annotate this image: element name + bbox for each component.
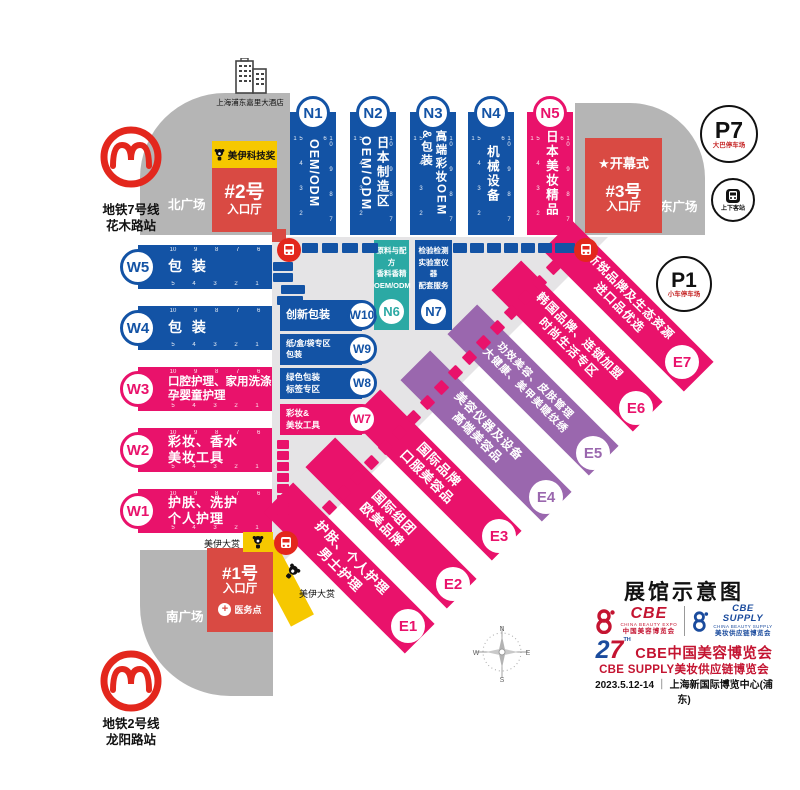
compass-n: N [499,626,504,633]
hall-w4-ticks-top: 10 9 8 7 6 [166,308,264,314]
booth-tag [277,484,289,493]
hall-n5: 日本美妆精品 5 4 3 2 1 10 9 8 7 6 [527,112,573,235]
meiyi-tech-award: 美伊科技奖 [212,141,277,168]
booth-tag [453,243,467,253]
edition-digit-2: 2 [596,636,610,664]
hall-n2-ticks-left: 5 4 3 2 1 [352,136,364,229]
booth-tag [302,243,318,253]
cbe-supply-logo: CBE SUPPLY CHINA BEAUTY SUPPLY 美妆供应链博览会 [692,604,772,637]
compass-s: S [500,677,505,684]
cbe-supply-mark-icon [692,610,710,632]
booth-tag [273,273,293,282]
parking-p1-desc: 小车停车场 [668,292,701,299]
hall-n5-ticks-right: 10 9 8 7 6 [559,136,571,229]
medical-point: + 医务点 [218,603,261,616]
event-date: 2023.5.12-14 [595,680,654,691]
metro-line2-station: 龙阳路站 [87,732,175,748]
hall-n5-badge: N5 [533,96,567,130]
hall-e1-badge: E1 [391,609,425,643]
meiyi-mascot-icon [214,148,225,161]
star-icon: ★ [598,156,610,171]
parking-p7-desc: 大巴停车场 [713,143,746,150]
hall-n3: 高端彩妆OEM &包装 5 4 3 2 1 10 9 8 7 6 [410,112,456,235]
metro-line7-label: 地铁7号线 花木路站 [87,202,175,235]
expo-logos: CBE CHINA BEAUTY EXPO 中国美容博览会 CBE SUPPLY… [594,604,774,637]
metro-line2-label: 地铁2号线 龙阳路站 [87,716,175,749]
hall-n3-badge: N3 [416,96,450,130]
hall-n2-badge: N2 [356,96,390,130]
hall-w1: 护肤、洗护 个人护理 10 9 8 7 6 5 4 3 2 1 [138,489,272,533]
entrance-2-hall: 入口厅 [227,204,262,217]
shuttle-bus-icon [277,238,301,262]
bus-stop-circle: 上下客站 [711,178,755,222]
hall-w2-ticks-top: 10 9 8 7 6 [166,430,264,436]
venue-map: 北广场 东广场 南广场 上海浦东嘉里大酒店 地铁7号线 花木路站 地铁2号线 龙… [0,0,800,790]
booth-tag [277,473,289,482]
hall-w5-ticks-top: 10 9 8 7 6 [166,247,264,253]
event-date-venue: 2023.5.12-14 ｜ 上海新国际博览中心(浦东) [592,676,776,706]
opening-label: 开幕式 [610,156,649,171]
parking-p1-code: P1 [671,270,697,291]
logo-divider [684,606,685,636]
hall-w8-label: 绿色包装 标签专区 [286,368,320,399]
hall-n3-ticks-right: 10 9 8 7 6 [442,136,454,229]
parking-p7: P7 大巴停车场 [700,105,758,163]
hall-e2-badge: E2 [436,567,470,601]
compass-rose: N S W E [470,620,534,684]
hall-w1-ticks-bottom: 5 4 3 2 1 [166,525,264,531]
entrance-1-hall: 入口厅 [223,583,258,596]
entrance-1-number: #1号 [222,564,258,584]
entrance-3-hall: 入口厅 [606,201,641,214]
booth-tag [281,285,305,294]
event-title-line2: CBE SUPPLY美妆供应链博览会 [592,661,776,677]
hall-e6-badge: E6 [619,391,653,425]
entrance-3: ★开幕式 #3号 入口厅 [585,138,662,233]
hotel-label: 上海浦东嘉里大酒店 [200,97,300,108]
meiyi-grand-box [243,532,273,552]
booth-tag [277,440,289,449]
hall-n4-ticks-left: 5 4 3 2 1 [470,136,482,229]
booth-tag [277,451,289,460]
hall-w2-ticks-bottom: 5 4 3 2 1 [166,464,264,470]
hall-w2: 彩妆、香水 美妆工具 10 9 8 7 6 5 4 3 2 1 [138,428,272,472]
booth-tag [521,243,535,253]
parking-p7-code: P7 [715,119,743,142]
hall-w10-badge: W10 [347,300,377,330]
booth-tag [277,296,303,305]
edition-th: TH [623,637,630,643]
booth-tag [504,243,518,253]
hall-n1: OEM/ODM 5 4 3 2 1 10 9 8 7 6 [290,112,336,235]
map-title: 展馆示意图 [599,576,769,606]
hall-w8-badge: W8 [347,368,377,398]
hall-w4: 包 装 10 9 8 7 6 5 4 3 2 1 [138,306,272,350]
hall-n6-badge: N6 [376,296,407,327]
booth-tag [470,243,484,253]
hall-e4-badge: E4 [529,480,563,514]
supply-logo-cn: 美妆供应链博览会 [715,631,771,638]
meiyi-tech-award-label: 美伊科技奖 [228,148,276,162]
booth-tag [538,243,552,253]
booth-tag [555,243,575,253]
east-plaza-label: 东广场 [660,196,698,215]
edition-digit-7: 7 [610,636,624,664]
entrance-2: #2号 入口厅 [212,168,277,232]
entrance-2-number: #2号 [224,182,264,204]
event-separator: ｜ [657,680,667,691]
supply-logo-name2: SUPPLY [723,614,763,624]
hall-w9-badge: W9 [347,334,377,364]
booth-tag [322,243,338,253]
medical-cross-icon: + [218,603,231,616]
hall-w1-ticks-top: 10 9 8 7 6 [166,491,264,497]
hall-e5-badge: E5 [576,436,610,470]
metro-line7-station: 花木路站 [87,218,175,234]
hall-n2: 日本制造区 OEM/ODM 5 4 3 2 1 10 9 8 7 6 [350,112,396,235]
hall-w3-ticks-bottom: 5 4 3 2 1 [166,403,264,409]
hall-w7-badge: W7 [347,404,377,434]
booth-tag [277,462,289,471]
event-name-cn: CBE中国美容博览会 [635,646,772,662]
event-venue: 上海新国际博览中心(浦东) [670,680,773,706]
event-title-line1: 27TH CBE中国美容博览会 [592,638,776,663]
parking-p1: P1 小车停车场 [656,256,712,312]
booth-tag [277,495,289,504]
booth-tag [277,506,289,515]
metro-line2-icon [98,648,164,714]
hall-w7-label: 彩妆& 美妆工具 [286,404,320,435]
south-plaza-label: 南广场 [166,606,204,625]
cbe-logo: CBE CHINA BEAUTY EXPO 中国美容博览会 [595,606,677,636]
hall-w9-label: 纸/盒/袋专区 包装 [286,334,330,365]
hotel-icon [226,58,272,96]
hall-n7-badge: N7 [418,296,449,327]
meiyi-grand-label: 美伊大赏 [204,537,240,550]
cbe-logo-cn: 中国美容博览会 [623,629,676,636]
cbe-logo-name: CBE [631,606,668,623]
supply-logo-en: CHINA BEAUTY SUPPLY [713,625,772,630]
compass-e: E [526,650,531,657]
booth-tag [273,262,293,271]
hall-w2-badge: W2 [120,432,156,468]
bus-stop-label: 上下客站 [721,206,745,212]
metro-line2-line: 地铁2号线 [87,716,175,732]
meiyi-mascot-icon [252,535,264,549]
hall-n2-ticks-right: 10 9 8 7 6 [382,136,394,229]
hall-n4-badge: N4 [474,96,508,130]
hall-e7-badge: E7 [665,345,699,379]
hall-w4-ticks-bottom: 5 4 3 2 1 [166,342,264,348]
hall-n1-badge: N1 [296,96,330,130]
booth-tag [342,243,358,253]
meiyi-grand-label: 美伊大赏 [299,587,335,600]
hall-w5: 包 装 10 9 8 7 6 5 4 3 2 1 [138,245,272,289]
hall-w5-badge: W5 [120,249,156,285]
entrance-1: #1号 入口厅 + 医务点 [207,548,273,632]
entrance-3-number: #3号 [606,182,642,202]
hall-e3-badge: E3 [482,519,516,553]
hall-n1-ticks-left: 5 4 3 2 1 [292,136,304,229]
metro-line7-line: 地铁7号线 [87,202,175,218]
hall-n4: 机械设备 5 4 3 2 1 10 9 8 7 6 [468,112,514,235]
hall-w5-ticks-bottom: 5 4 3 2 1 [166,281,264,287]
hall-n1-ticks-right: 10 9 8 7 6 [322,136,334,229]
hall-n4-ticks-right: 10 9 8 7 6 [500,136,512,229]
hall-n5-ticks-left: 5 4 3 2 1 [529,136,541,229]
opening-ceremony: ★开幕式 [598,157,649,172]
hall-n3-ticks-left: 5 4 3 2 1 [412,136,424,229]
booth-tag [487,243,501,253]
shuttle-bus-icon [274,531,298,555]
shuttle-bus-icon [574,238,598,262]
hall-w3: 口腔护理、家用洗涤 孕婴童护理 10 9 8 7 6 5 4 3 2 1 [138,367,272,411]
bus-stop-icon [725,188,741,204]
medical-label: 医务点 [234,605,261,615]
metro-line7-icon [98,124,164,190]
hall-w1-badge: W1 [120,493,156,529]
hall-w3-ticks-top: 10 9 8 7 6 [166,369,264,375]
compass-w: W [473,650,480,657]
hall-w4-badge: W4 [120,310,156,346]
hall-w3-badge: W3 [120,371,156,407]
booth-tag [362,243,378,253]
cbe-mark-icon [595,608,617,634]
